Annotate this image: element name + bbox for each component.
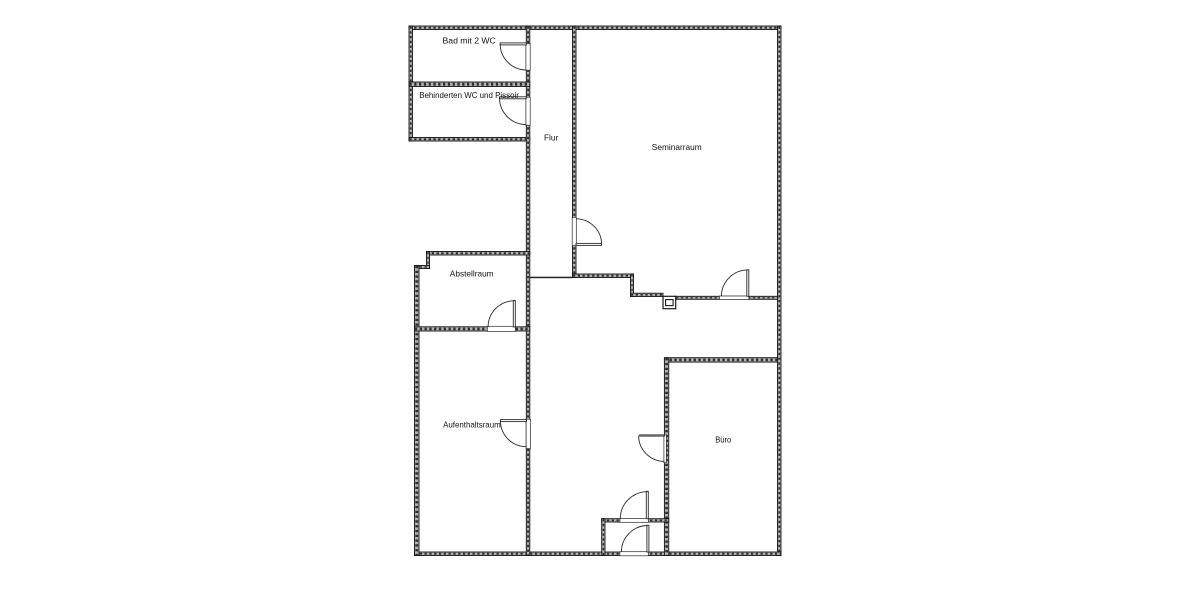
svg-text:Seminarraum: Seminarraum — [652, 142, 702, 152]
svg-text:Bad mit 2 WC: Bad mit 2 WC — [443, 35, 496, 45]
svg-text:Abstellraum: Abstellraum — [450, 268, 494, 278]
svg-text:Büro: Büro — [715, 435, 731, 445]
svg-text:Flur: Flur — [544, 132, 558, 142]
svg-text:Aufenthaltsraum: Aufenthaltsraum — [443, 419, 501, 429]
svg-text:Behinderten WC und Pissoir: Behinderten WC und Pissoir — [419, 90, 519, 100]
